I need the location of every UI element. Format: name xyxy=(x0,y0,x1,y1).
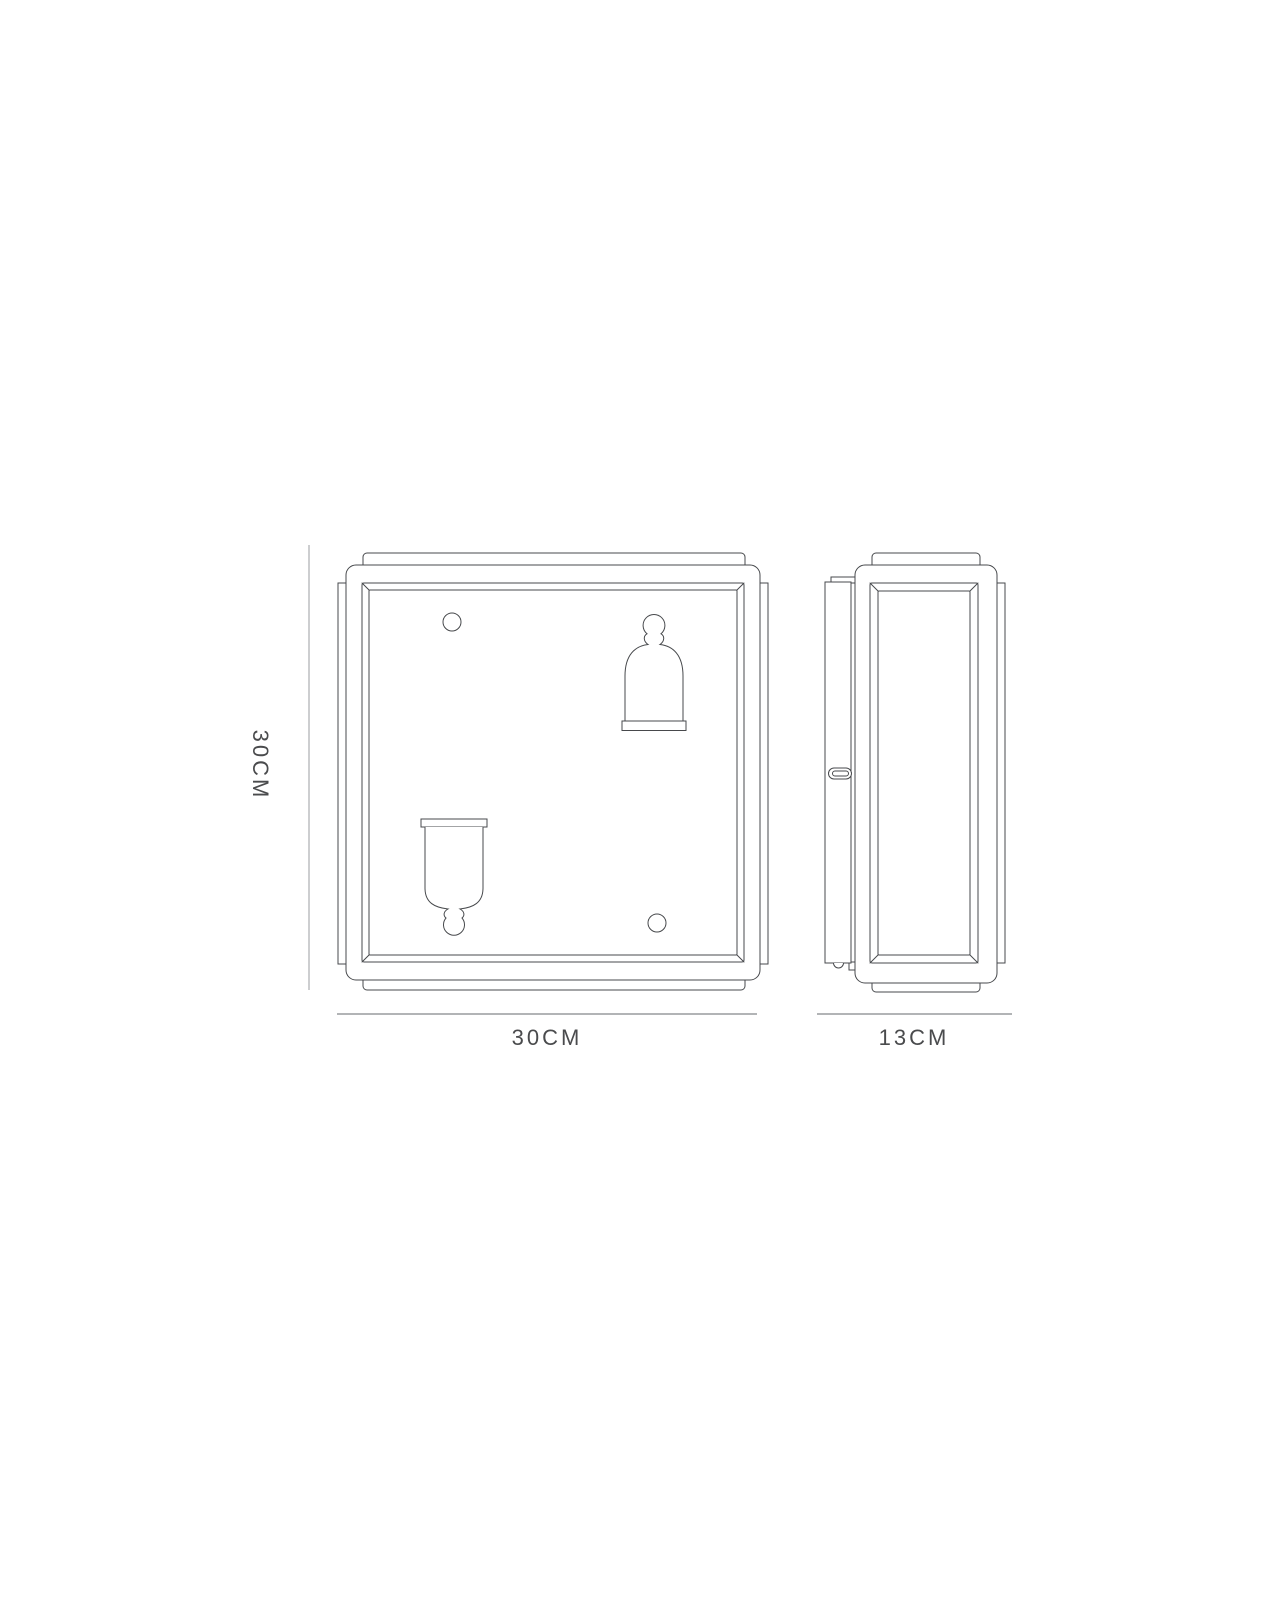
depth-dimension-label: 13CM xyxy=(814,1025,1014,1051)
height-dimension-label: 30CM xyxy=(247,665,273,865)
side-view xyxy=(825,553,1005,992)
front-screw-hole-top-left xyxy=(443,613,461,631)
width-dimension-label: 30CM xyxy=(447,1025,647,1051)
side-keyhole-clip-inner xyxy=(833,771,849,776)
side-wall-plate-bump xyxy=(834,963,844,968)
drawing-canvas xyxy=(0,0,1280,1600)
lamp-holder-bottom-rim xyxy=(421,819,487,827)
side-glass-bezel-inner xyxy=(878,591,970,955)
front-view xyxy=(338,553,768,990)
front-glass-bezel-inner xyxy=(369,590,737,955)
lamp-holder-top-base xyxy=(622,721,686,731)
front-screw-hole-bottom-right xyxy=(648,914,666,932)
dimension-diagram: 30CM 30CM 13CM xyxy=(0,0,1280,1600)
